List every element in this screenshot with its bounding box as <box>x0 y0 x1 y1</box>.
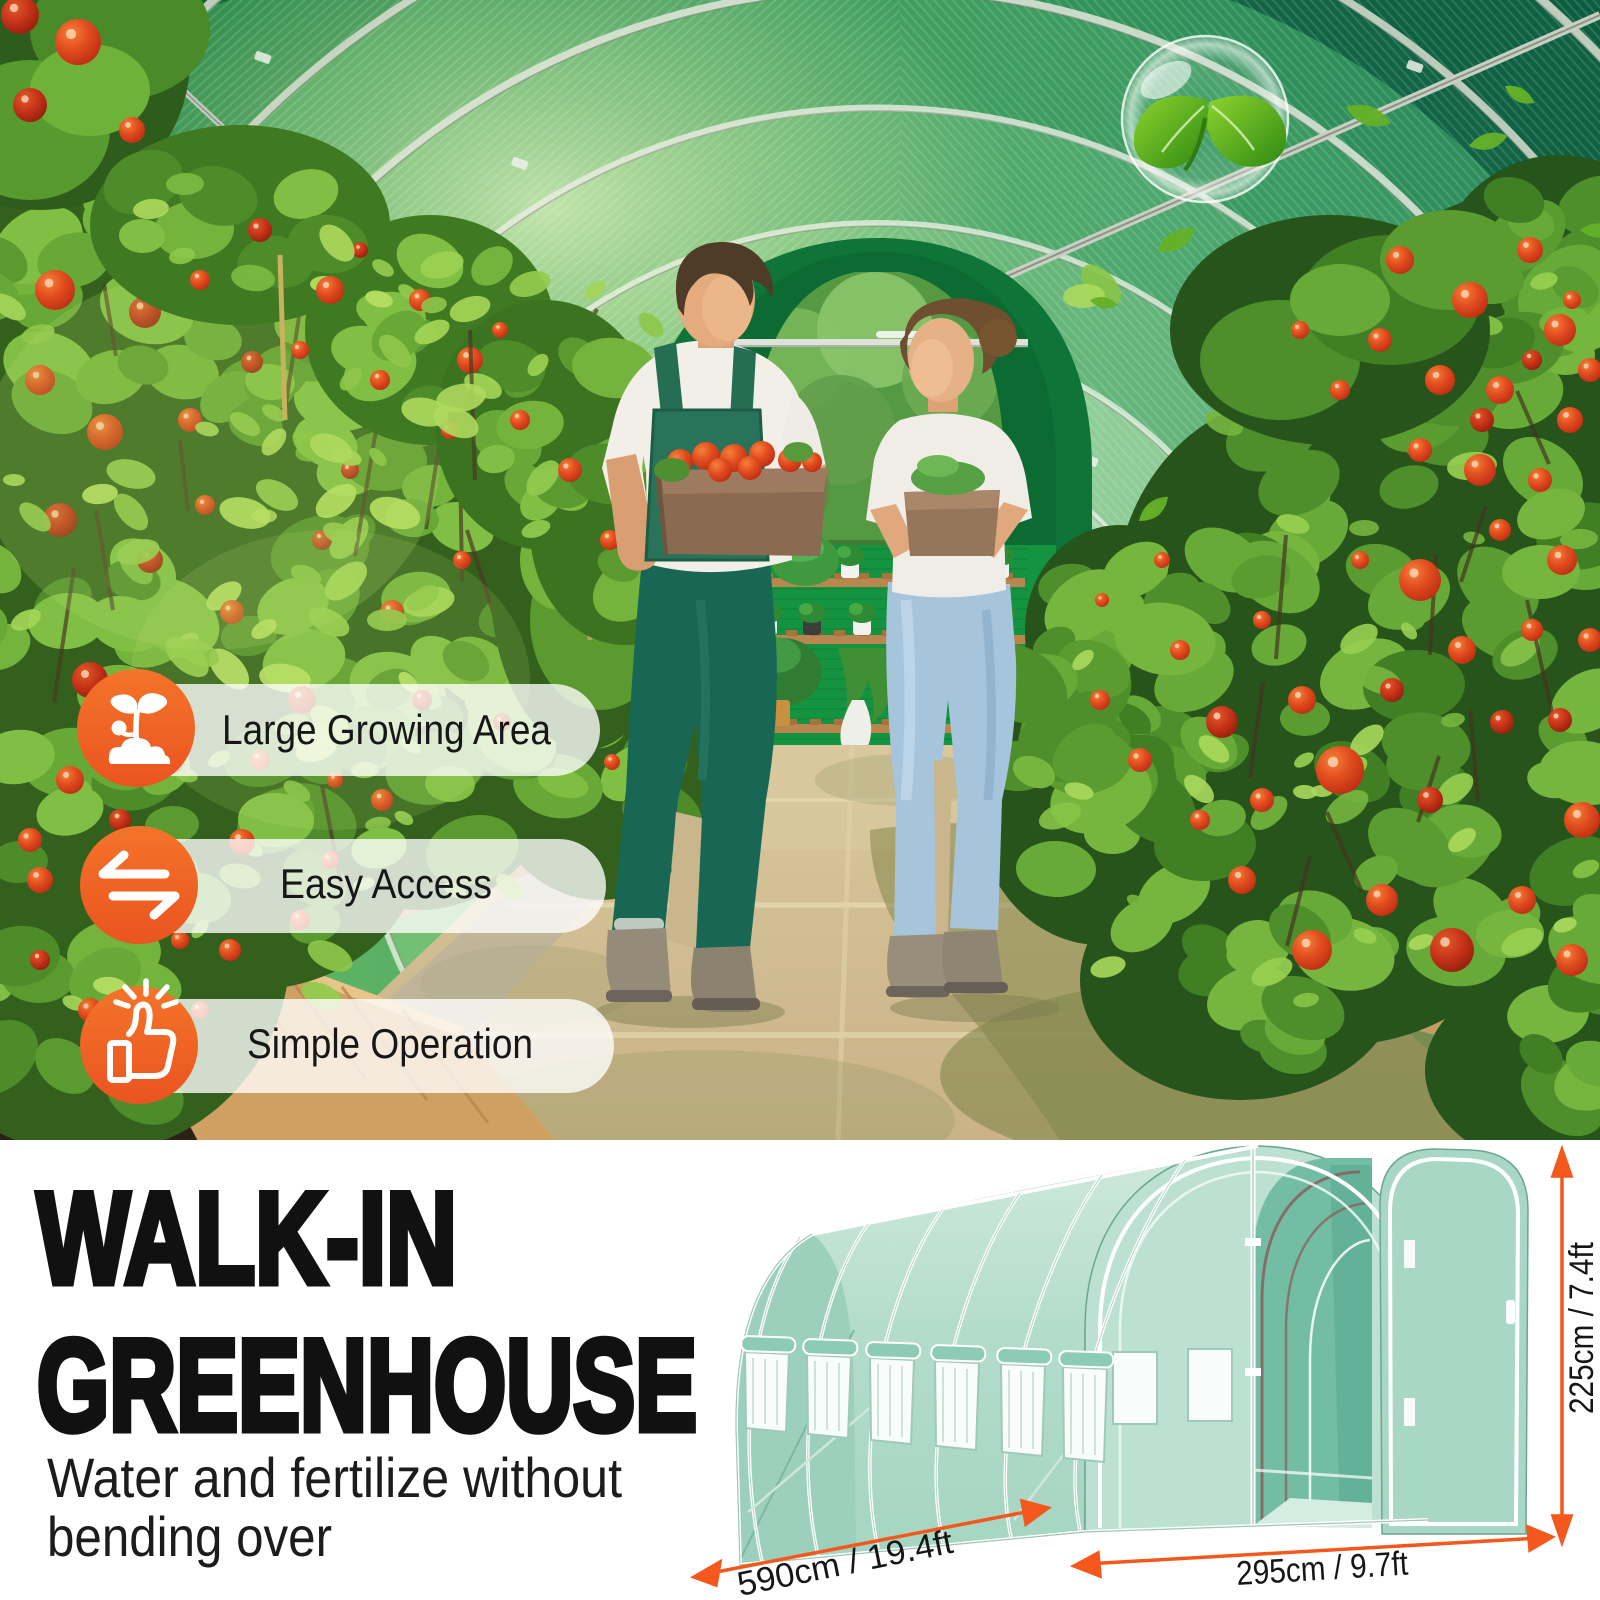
svg-text:GREENHOUSE: GREENHOUSE <box>37 1312 697 1458</box>
svg-text:Simple Operation: Simple Operation <box>247 1020 533 1067</box>
svg-text:295cm / 9.7ft: 295cm / 9.7ft <box>1235 1545 1409 1593</box>
svg-text:Water and fertilize without: Water and fertilize without <box>47 1446 622 1509</box>
svg-text:bending over: bending over <box>47 1505 332 1568</box>
svg-text:Large Growing Area: Large Growing Area <box>222 706 552 753</box>
svg-text:WALK-IN: WALK-IN <box>37 1165 457 1311</box>
svg-text:225cm / 7.4ft: 225cm / 7.4ft <box>1563 1242 1600 1414</box>
svg-text:Easy Access: Easy Access <box>280 860 492 907</box>
